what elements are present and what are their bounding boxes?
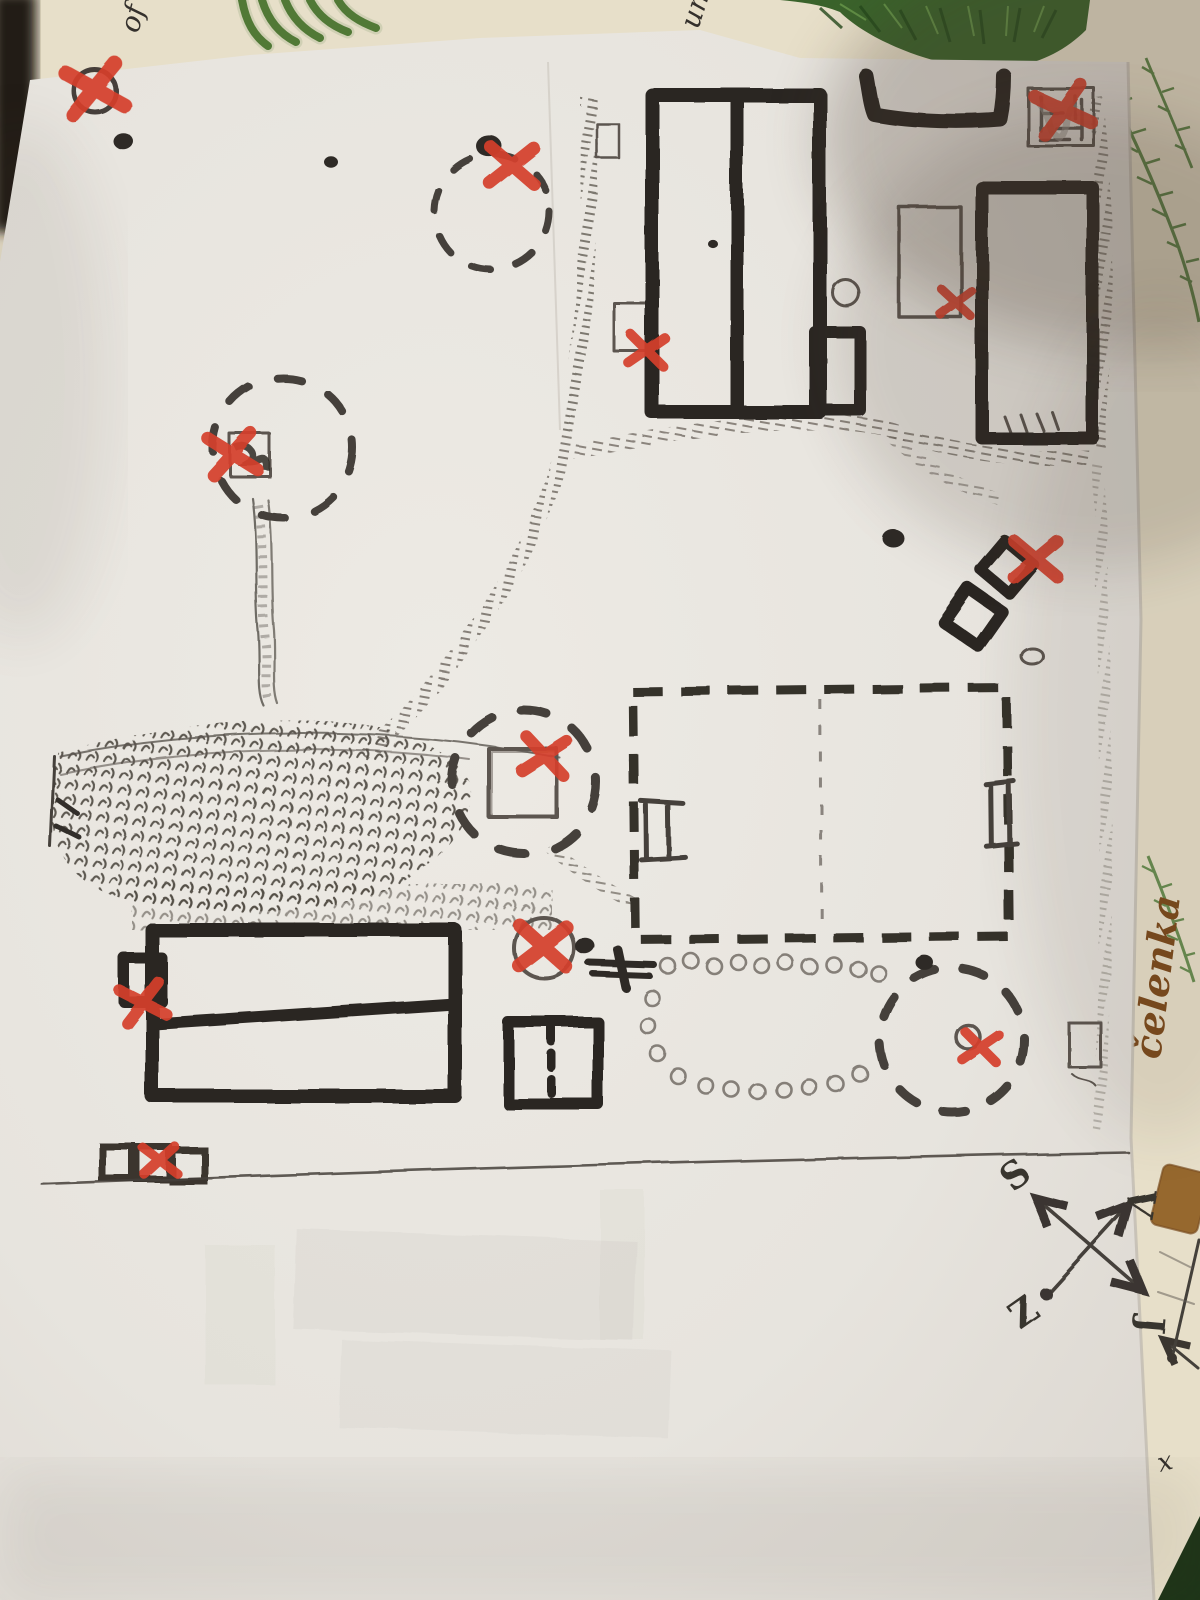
compass-ink-blob xyxy=(1040,1288,1052,1300)
ink-dot xyxy=(113,133,133,149)
ink-dot xyxy=(707,239,717,247)
ink-dot xyxy=(882,529,904,547)
photo-of-hand-drawn-map: of un čelenka x xyxy=(0,0,1200,1600)
ink-dot xyxy=(324,156,338,167)
ink-dot xyxy=(916,956,934,971)
ink-dot xyxy=(575,938,595,954)
